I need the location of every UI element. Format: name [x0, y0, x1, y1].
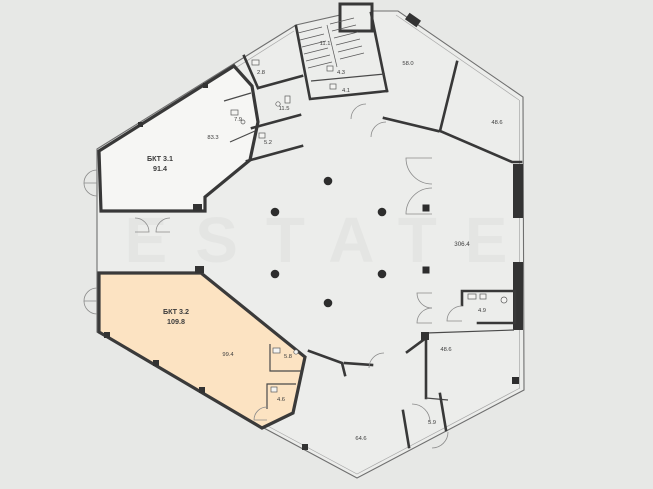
watermark-text: ESTATE	[125, 204, 536, 276]
room-area-label: 4.1	[342, 88, 350, 94]
room-area-label: 2.8	[257, 70, 265, 76]
room-area-label: 11.1	[320, 41, 331, 47]
open-space-area-label: 306.4	[454, 241, 470, 248]
unit-bkt-3-1-area: 91.4	[153, 164, 167, 173]
shaft-block	[513, 164, 523, 218]
floor-plan-page: ESTATE	[0, 0, 653, 489]
room-area-label: 11.5	[279, 106, 290, 112]
room-area-label: 83.3	[207, 135, 218, 141]
room-area-label: 7.9	[234, 117, 242, 123]
room-area-label: 5.8	[284, 354, 292, 360]
room-area-label: 5.2	[264, 140, 272, 146]
floor-plan-drawing: ESTATE	[0, 0, 653, 489]
room-area-label: 4.3	[337, 70, 345, 76]
unit-bkt-3-1-name: БКТ 3.1	[147, 154, 173, 163]
room-area-label: 4.9	[478, 308, 486, 314]
room-area-label: 5.9	[428, 420, 436, 426]
room-area-label: 4.6	[277, 397, 285, 403]
room-area-label: 48.6	[491, 120, 502, 126]
room-area-label: 58.0	[402, 61, 413, 67]
room-area-label: 99.4	[222, 352, 234, 358]
room-area-label: 64.6	[355, 436, 366, 442]
unit-bkt-3-2-name: БКТ 3.2	[163, 307, 189, 316]
unit-bkt-3-2-area: 109.8	[167, 317, 185, 326]
room-area-label: 48.6	[440, 347, 451, 353]
